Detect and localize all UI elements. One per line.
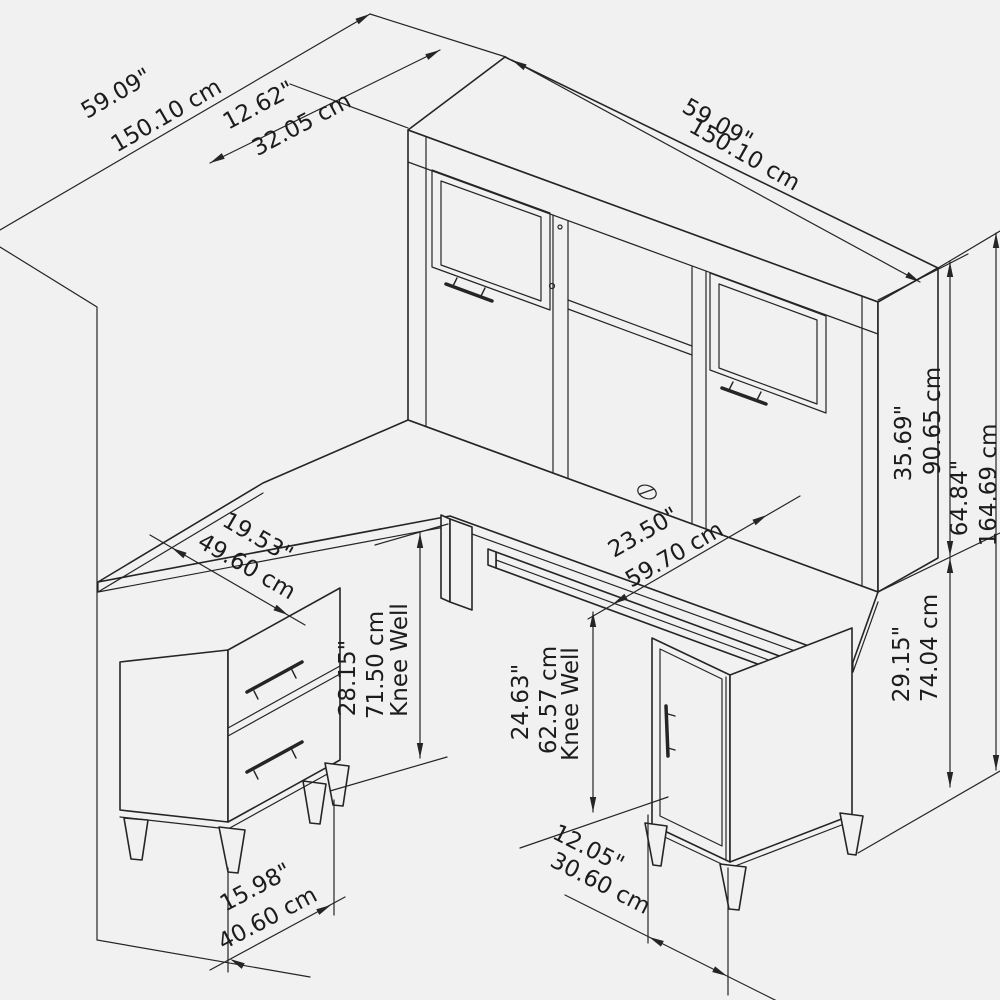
left-drawer-pedestal	[120, 588, 349, 873]
right-pedestal-side	[730, 628, 852, 862]
left-pedestal-back-leg	[303, 781, 326, 824]
dim-center-kneewell-inches: 24.63"	[508, 664, 534, 740]
dim-total-height-cm: 164.69 cm	[976, 424, 1000, 547]
dim-total-height-inches: 64.84"	[947, 460, 973, 536]
dim-desk-height-cm: 74.04 cm	[917, 594, 943, 702]
dim-left-kneewell-cm: 71.50 cm	[363, 611, 389, 719]
dim-left-kneewell-inches: 28.15"	[335, 640, 361, 716]
dim-hutch-height-cm: 90.65 cm	[920, 367, 946, 475]
left-pedestal-side	[120, 650, 228, 822]
dim-center-kneewell-note: Knee Well	[558, 647, 584, 761]
right-door-pedestal	[645, 628, 863, 910]
dim-hutch-height-inches: 35.69"	[891, 405, 917, 481]
desk-dimension-diagram: 59.09" 150.10 cm 12.62" 32.05 cm 59.09" …	[0, 0, 1000, 1000]
dim-left-kneewell-note: Knee Well	[387, 603, 413, 717]
corner-leg-post	[441, 515, 472, 610]
dim-desk-height-inches: 29.15"	[889, 626, 915, 702]
